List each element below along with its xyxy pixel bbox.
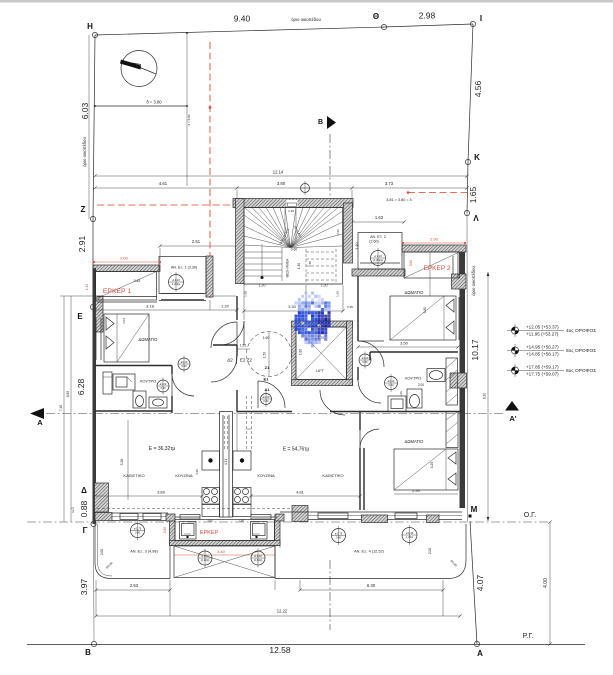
svg-text:E = 36,32τμ: E = 36,32τμ (149, 446, 176, 452)
svg-text:3.04: 3.04 (122, 318, 126, 324)
svg-text:5ος ΟΡΟΦΟΣ: 5ος ΟΡΟΦΟΣ (566, 348, 596, 354)
svg-text:M: M (471, 505, 478, 514)
svg-text:3.73: 3.73 (385, 181, 394, 186)
svg-text:+14.85 (+56.17): +14.85 (+56.17) (526, 352, 559, 357)
svg-text:3.97: 3.97 (79, 578, 89, 595)
svg-text:ø 1.40: ø 1.40 (406, 531, 414, 535)
svg-text:+12.05 (+53.37): +12.05 (+53.37) (526, 325, 559, 330)
svg-text:10.17: 10.17 (470, 339, 480, 361)
svg-text:(2,20ψ): (2,20ψ) (254, 558, 263, 562)
svg-text:4.81: 4.81 (296, 490, 305, 495)
svg-text:2.51: 2.51 (192, 239, 201, 244)
svg-text:ΥΔΛ: ΥΔΛ (207, 519, 213, 523)
svg-text:ΔΩΜΑΤΙΟ: ΔΩΜΑΤΙΟ (139, 337, 159, 342)
svg-text:ø1.10: ø1.10 (388, 379, 395, 383)
svg-text:4.56: 4.56 (473, 80, 483, 97)
svg-text:ø 1.75: ø 1.75 (134, 526, 142, 530)
svg-text:όριο οικοπέδου: όριο οικοπέδου (82, 137, 87, 167)
svg-text:3.30: 3.30 (288, 304, 297, 309)
svg-text:0.60: 0.60 (163, 527, 167, 533)
svg-text:7.40: 7.40 (59, 405, 63, 411)
svg-text:6.28: 6.28 (76, 378, 86, 395)
svg-text:ø 1.75: ø 1.75 (335, 531, 343, 535)
svg-text:Ο.Γ.: Ο.Γ. (524, 512, 536, 519)
svg-text:3.26: 3.26 (120, 459, 124, 466)
svg-text:1.26: 1.26 (336, 291, 340, 297)
svg-text:(2,20ψ): (2,20ψ) (201, 558, 210, 562)
svg-text:ω 0: ω 0 (71, 507, 75, 512)
svg-text:2.23: 2.23 (336, 229, 340, 235)
svg-text:1.40: 1.40 (355, 243, 359, 250)
svg-text:E: E (77, 312, 83, 321)
svg-text:0.60: 0.60 (291, 248, 298, 252)
svg-text:6.65: 6.65 (66, 391, 70, 397)
svg-text:ΕΡΚΕΡ 1: ΕΡΚΕΡ 1 (103, 288, 131, 295)
svg-text:ø1.10: ø1.10 (160, 382, 167, 386)
svg-text:1.63: 1.63 (375, 215, 384, 220)
svg-text:0.90: 0.90 (336, 536, 342, 540)
svg-text:A': A' (509, 414, 516, 423)
svg-text:ΟΔΤ: ΟΔΤ (239, 519, 245, 523)
svg-text:0.35: 0.35 (347, 305, 353, 309)
svg-text:3.50: 3.50 (400, 341, 409, 346)
svg-text:+14.95 (+56.27): +14.95 (+56.27) (526, 345, 559, 350)
svg-text:0.60: 0.60 (362, 360, 368, 364)
svg-text:3.40: 3.40 (217, 549, 226, 554)
svg-text:0.60: 0.60 (263, 399, 269, 403)
svg-text:B: B (85, 648, 91, 657)
svg-text:2.53: 2.53 (130, 583, 139, 588)
svg-text:Δ: Δ (81, 486, 87, 495)
svg-text:6.03: 6.03 (80, 102, 90, 119)
svg-text:4ος ΟΡΟΦΟΣ: 4ος ΟΡΟΦΟΣ (566, 328, 596, 334)
svg-text:6.30: 6.30 (367, 583, 376, 588)
svg-text:ø1.10: ø1.10 (362, 356, 369, 360)
svg-text:4.00: 4.00 (543, 578, 549, 588)
svg-text:I: I (480, 14, 482, 23)
svg-text:1.60: 1.60 (399, 391, 403, 397)
svg-text:ΑΝ. ΕΞ. 3 (4,98): ΑΝ. ΕΞ. 3 (4,98) (130, 550, 158, 554)
svg-text:ΛΟΥΤΡΟ: ΛΟΥΤΡΟ (405, 376, 421, 381)
svg-text:12.22: 12.22 (277, 609, 288, 614)
svg-text:2.00: 2.00 (100, 549, 104, 555)
svg-text:ΔΩΜΑΤΙΟ: ΔΩΜΑΤΙΟ (405, 290, 425, 295)
svg-text:ΛΟΥΤΡΟ: ΛΟΥΤΡΟ (140, 379, 156, 384)
svg-text:ΕΡΚΕΡ 2: ΕΡΚΕΡ 2 (424, 265, 451, 272)
svg-text:+11.95 (+53.27): +11.95 (+53.27) (526, 332, 559, 337)
svg-text:2.00: 2.00 (418, 383, 424, 387)
svg-text:4.31: 4.31 (224, 459, 228, 465)
svg-text:1.20: 1.20 (221, 304, 230, 309)
svg-text:Z: Z (81, 205, 86, 214)
svg-text:ΑΝ. ΕΞ. 2: ΑΝ. ΕΞ. 2 (370, 235, 386, 239)
svg-text:1.52: 1.52 (240, 344, 246, 348)
svg-text:12.58: 12.58 (269, 645, 291, 655)
svg-text:0.60: 0.60 (181, 364, 187, 368)
svg-text:Ε2 Ζ2: Ε2 Ζ2 (240, 358, 253, 363)
svg-text:0.60: 0.60 (409, 260, 413, 266)
svg-text:2.90: 2.90 (430, 237, 439, 242)
svg-text:ø 1.40: ø 1.40 (254, 554, 262, 558)
svg-text:ø 1.40: ø 1.40 (201, 554, 209, 558)
svg-text:R0.80: R0.80 (449, 559, 458, 568)
svg-text:1.65: 1.65 (468, 186, 478, 203)
svg-text:Ρ.Γ.: Ρ.Γ. (523, 633, 534, 640)
svg-text:0.90: 0.90 (135, 531, 141, 535)
svg-text:ΑΝ. ΕΞ. 1 (3,39): ΑΝ. ΕΞ. 1 (3,39) (171, 266, 197, 270)
svg-text:B: B (318, 119, 323, 126)
svg-text:3.89: 3.89 (157, 490, 166, 495)
svg-text:(2,20ψμ): (2,20ψμ) (373, 258, 383, 262)
svg-text:Z1: Z1 (265, 365, 270, 370)
svg-text:H: H (87, 22, 93, 31)
svg-text:E = 54,76τμ: E = 54,76τμ (283, 447, 310, 453)
svg-text:ø 1,20: ø 1,20 (374, 254, 382, 258)
svg-text:2.91: 2.91 (77, 235, 87, 252)
svg-text:1.40: 1.40 (85, 284, 89, 290)
svg-text:3.18: 3.18 (146, 304, 155, 309)
svg-text:όριο οικοπέδου: όριο οικοπέδου (471, 266, 476, 296)
svg-text:Δ1: Δ1 (264, 387, 270, 392)
svg-text:3.25: 3.25 (430, 462, 434, 469)
svg-text:Λ: Λ (473, 214, 479, 223)
svg-text:ΑΝ. ΕΞ. 4 (12,52): ΑΝ. ΕΞ. 4 (12,52) (354, 550, 384, 554)
svg-text:ΔΩΜΑΤΙΟ: ΔΩΜΑΤΙΟ (405, 439, 425, 444)
svg-text:ΘΕΣΗ ΑΜΕΑ: ΘΕΣΗ ΑΜΕΑ (286, 258, 290, 277)
svg-text:ΚΑΘΙΣΤΙΚΟ: ΚΑΘΙΣΤΙΚΟ (322, 473, 343, 478)
svg-text:LIFT: LIFT (316, 369, 324, 373)
svg-text:0.45: 0.45 (134, 279, 141, 283)
svg-text:δ = 5.80: δ = 5.80 (187, 114, 191, 125)
svg-text:Θ: Θ (373, 12, 379, 21)
svg-text:A: A (37, 418, 43, 427)
svg-text:R0.80: R0.80 (105, 561, 114, 570)
svg-text:+17.85 (+59.17): +17.85 (+59.17) (526, 365, 559, 370)
svg-text:3.80: 3.80 (423, 307, 427, 314)
svg-text:3.81 > 3.80 = δ: 3.81 > 3.80 = δ (386, 198, 412, 202)
svg-text:2.00: 2.00 (120, 256, 129, 261)
svg-text:+17.75 (+59.07): +17.75 (+59.07) (526, 372, 559, 377)
svg-text:1.50: 1.50 (308, 261, 312, 267)
svg-text:ø1.10: ø1.10 (263, 395, 270, 399)
svg-text:ΚΟΥΖΙΝΑ: ΚΟΥΖΙΝΑ (175, 473, 193, 478)
svg-text:0.60: 0.60 (388, 383, 394, 387)
svg-text:6ος ΟΡΟΦΟΣ: 6ος ΟΡΟΦΟΣ (566, 368, 596, 374)
svg-text:1.58: 1.58 (244, 291, 248, 297)
svg-text:1.00ψ: 1.00ψ (406, 535, 413, 539)
svg-text:ΚΟΥΖΙΝΑ: ΚΟΥΖΙΝΑ (257, 473, 275, 478)
svg-text:1.60: 1.60 (299, 349, 303, 355)
svg-text:4.07: 4.07 (475, 574, 485, 591)
svg-text:9.40: 9.40 (234, 14, 251, 24)
svg-text:ø 1,00: ø 1,00 (172, 278, 180, 282)
svg-text:δ = 3.80: δ = 3.80 (146, 100, 162, 105)
svg-text:2.90: 2.90 (412, 488, 421, 493)
svg-text:A: A (477, 649, 483, 658)
svg-text:3.80: 3.80 (277, 181, 286, 186)
svg-text:8.10: 8.10 (483, 393, 487, 399)
svg-text:2.98: 2.98 (419, 11, 436, 21)
svg-text:1.30: 1.30 (297, 263, 301, 269)
svg-text:ø1.10: ø1.10 (181, 360, 188, 364)
svg-text:όριο οικοπέδου: όριο οικοπέδου (291, 17, 321, 22)
svg-text:4.61: 4.61 (159, 181, 168, 186)
svg-text:0.60: 0.60 (160, 386, 166, 390)
svg-text:1.36: 1.36 (288, 209, 294, 213)
svg-text:ΕΡΚΕΡ: ΕΡΚΕΡ (200, 530, 219, 536)
svg-text:1.60: 1.60 (263, 336, 270, 340)
svg-text:Γ: Γ (83, 526, 88, 535)
svg-text:ΚΑΘΙΣΤΙΚΟ: ΚΑΘΙΣΤΙΚΟ (123, 473, 144, 478)
svg-text:Δ2: Δ2 (227, 358, 233, 363)
svg-text:(2,60): (2,60) (369, 240, 378, 244)
svg-text:1.50: 1.50 (263, 352, 267, 358)
svg-text:E1: E1 (264, 377, 270, 382)
svg-text:0.88: 0.88 (79, 500, 89, 517)
svg-text:2.00: 2.00 (428, 548, 432, 554)
svg-text:12.14: 12.14 (273, 170, 284, 175)
svg-text:10×16,4/30: 10×16,4/30 (293, 225, 303, 239)
svg-text:2,20ψμ: 2,20ψμ (172, 282, 181, 286)
svg-text:4.35: 4.35 (195, 469, 199, 475)
svg-text:K: K (474, 153, 480, 162)
